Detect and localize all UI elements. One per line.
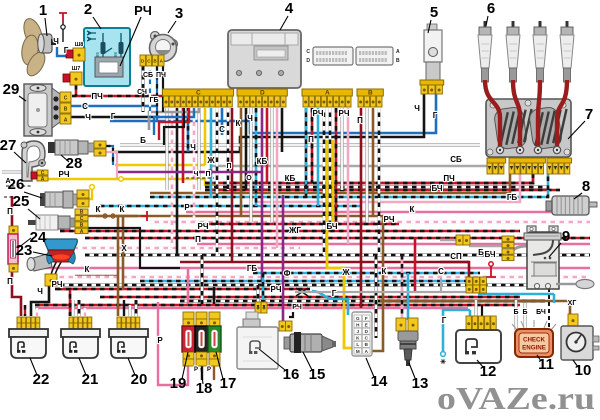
svg-text:oVAZe.ru: oVAZe.ru xyxy=(437,380,595,416)
svg-text:БЧ: БЧ xyxy=(431,184,442,193)
svg-text:10: 10 xyxy=(575,362,592,379)
svg-text:К: К xyxy=(236,119,241,128)
svg-text:КБ: КБ xyxy=(285,174,296,183)
svg-text:CHECK: CHECK xyxy=(523,337,546,344)
svg-text:В: В xyxy=(64,107,68,113)
svg-text:Г: Г xyxy=(64,46,69,55)
svg-text:Ч: Ч xyxy=(53,37,59,46)
svg-text:Х: Х xyxy=(121,244,127,253)
svg-text:БЧ: БЧ xyxy=(484,250,495,259)
svg-text:Г: Г xyxy=(111,112,116,121)
svg-text:85: 85 xyxy=(95,51,100,57)
svg-text:ЖГ: ЖГ xyxy=(288,226,301,235)
svg-text:Р: Р xyxy=(194,367,198,373)
svg-text:E: E xyxy=(365,322,368,327)
svg-text:2: 2 xyxy=(84,1,92,18)
svg-text:ГБ: ГБ xyxy=(150,97,159,104)
svg-text:ГБ: ГБ xyxy=(507,193,518,202)
svg-text:РЧ: РЧ xyxy=(271,285,282,294)
svg-text:В: В xyxy=(368,90,373,97)
svg-text:D: D xyxy=(306,58,310,64)
svg-text:К: К xyxy=(85,265,90,274)
svg-text:ПЧ: ПЧ xyxy=(443,174,455,183)
svg-text:БЧ: БЧ xyxy=(536,309,546,316)
svg-text:О: О xyxy=(246,175,252,182)
svg-text:13: 13 xyxy=(412,375,429,392)
svg-text:ХГ: ХГ xyxy=(568,300,577,307)
svg-text:В: В xyxy=(396,58,400,64)
svg-text:Б: Б xyxy=(478,248,484,257)
svg-text:А: А xyxy=(325,90,330,97)
svg-text:ГБ: ГБ xyxy=(247,264,258,273)
svg-text:18: 18 xyxy=(196,380,213,397)
svg-text:П: П xyxy=(205,171,210,178)
svg-text:П: П xyxy=(7,207,13,216)
svg-text:J: J xyxy=(357,329,360,334)
svg-text:5: 5 xyxy=(430,4,438,21)
svg-text:К: К xyxy=(96,205,101,214)
svg-text:Ч: Ч xyxy=(414,104,420,113)
svg-text:L: L xyxy=(356,342,359,347)
svg-text:M: M xyxy=(356,349,360,354)
svg-text:G: G xyxy=(356,316,360,321)
svg-text:Ч: Ч xyxy=(85,113,91,122)
svg-text:ПЧ: ПЧ xyxy=(156,72,166,79)
svg-text:П: П xyxy=(195,235,201,244)
svg-text:СБ: СБ xyxy=(143,72,153,79)
svg-text:6: 6 xyxy=(487,0,495,17)
svg-text:РЧ: РЧ xyxy=(384,215,395,224)
svg-text:Ш8: Ш8 xyxy=(75,42,84,48)
svg-text:Б: Б xyxy=(522,309,527,316)
svg-text:D: D xyxy=(260,90,265,97)
svg-text:В: В xyxy=(80,222,84,228)
svg-text:Ф: Ф xyxy=(284,269,291,278)
svg-text:С: С xyxy=(80,216,84,222)
svg-text:ПЧ: ПЧ xyxy=(91,92,103,101)
svg-text:П: П xyxy=(357,116,363,125)
svg-text:22: 22 xyxy=(33,371,50,388)
svg-text:1: 1 xyxy=(39,2,47,19)
svg-text:Р: Р xyxy=(157,336,163,345)
svg-text:А: А xyxy=(64,118,68,124)
svg-text:16: 16 xyxy=(283,366,300,383)
svg-text:Ж: Ж xyxy=(206,156,215,165)
svg-text:К: К xyxy=(120,205,125,214)
svg-text:Г: Г xyxy=(433,111,438,120)
svg-text:А: А xyxy=(80,229,84,235)
svg-text:Ч: Ч xyxy=(190,143,196,152)
svg-text:Ч: Ч xyxy=(37,287,43,296)
svg-text:РЧ: РЧ xyxy=(339,109,350,118)
svg-text:Ч: Ч xyxy=(247,114,253,123)
svg-text:7: 7 xyxy=(585,106,593,123)
svg-text:27: 27 xyxy=(0,137,16,154)
svg-text:Г: Г xyxy=(442,316,447,325)
svg-text:СБ: СБ xyxy=(450,155,462,164)
svg-text:РЧ: РЧ xyxy=(313,109,324,118)
svg-text:С: С xyxy=(438,267,444,276)
svg-text:4: 4 xyxy=(285,0,294,17)
svg-text:РЧ: РЧ xyxy=(52,280,63,289)
svg-text:РЧ: РЧ xyxy=(134,3,152,18)
svg-text:БЧ: БЧ xyxy=(326,222,337,231)
svg-text:А: А xyxy=(5,178,10,185)
svg-text:К: К xyxy=(410,205,415,214)
svg-text:С: С xyxy=(64,96,68,102)
svg-text:20: 20 xyxy=(131,371,148,388)
svg-text:С: С xyxy=(196,90,201,97)
svg-text:К: К xyxy=(382,267,387,276)
svg-text:29: 29 xyxy=(3,81,20,98)
svg-text:Р: Р xyxy=(207,367,211,373)
svg-text:21: 21 xyxy=(82,371,99,388)
svg-text:А: А xyxy=(396,49,400,55)
svg-text:СЧ: СЧ xyxy=(137,89,147,96)
svg-text:86: 86 xyxy=(113,51,118,57)
svg-text:А: А xyxy=(41,176,45,182)
svg-text:РЧ: РЧ xyxy=(198,222,209,231)
svg-text:Б: Б xyxy=(513,309,518,316)
svg-text:Г: Г xyxy=(332,289,337,298)
svg-text:Р: Р xyxy=(184,203,190,212)
svg-text:РЧ: РЧ xyxy=(59,170,70,179)
svg-text:✳: ✳ xyxy=(440,358,446,366)
svg-text:КБ: КБ xyxy=(257,157,268,166)
svg-text:Ж: Ж xyxy=(341,268,350,277)
svg-text:3: 3 xyxy=(175,5,183,22)
svg-text:С: С xyxy=(82,102,88,111)
svg-text:F: F xyxy=(365,316,368,321)
svg-text:9: 9 xyxy=(562,228,570,245)
svg-text:СП: СП xyxy=(450,252,462,261)
svg-text:Б: Б xyxy=(140,136,146,145)
svg-text:24: 24 xyxy=(30,229,47,246)
svg-text:Ш7: Ш7 xyxy=(72,66,81,72)
svg-text:19: 19 xyxy=(170,375,187,392)
svg-text:В: В xyxy=(80,210,84,216)
svg-text:ENGINE: ENGINE xyxy=(522,345,546,352)
svg-text:П: П xyxy=(7,277,13,286)
svg-text:11: 11 xyxy=(538,356,554,373)
svg-text:8: 8 xyxy=(582,178,590,195)
svg-text:Ч: Ч xyxy=(194,171,199,178)
svg-text:С: С xyxy=(219,125,225,134)
svg-text:РЧ: РЧ xyxy=(292,304,302,311)
svg-text:П: П xyxy=(308,135,314,144)
svg-text:П: П xyxy=(226,163,231,170)
svg-text:25: 25 xyxy=(13,193,30,210)
svg-text:С: С xyxy=(306,49,310,55)
